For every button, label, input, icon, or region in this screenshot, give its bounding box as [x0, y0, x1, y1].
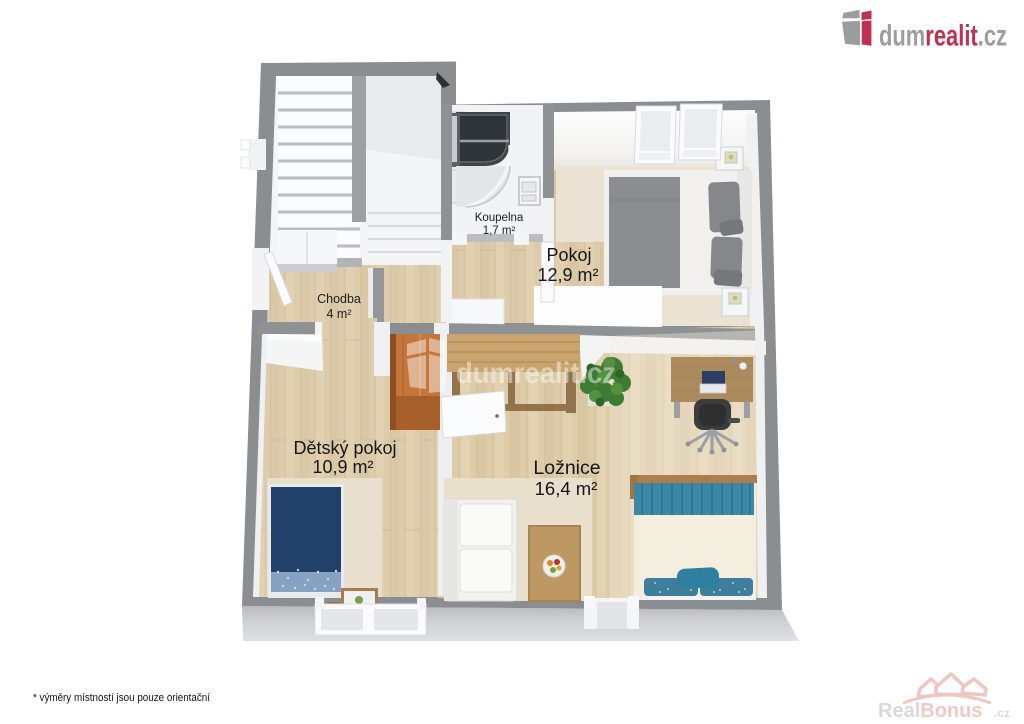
- svg-text:Koupelna: Koupelna: [475, 212, 524, 224]
- svg-text:Ložnice: Ložnice: [533, 457, 600, 479]
- svg-text:4 m²: 4 m²: [327, 307, 352, 321]
- svg-text:1,7 m²: 1,7 m²: [483, 225, 516, 237]
- svg-text:Chodba: Chodba: [317, 292, 361, 306]
- svg-text:Dětský pokoj: Dětský pokoj: [293, 438, 396, 458]
- svg-text:10,9 m²: 10,9 m²: [312, 457, 373, 477]
- svg-text:.cz: .cz: [994, 706, 1010, 720]
- svg-text:16,4 m²: 16,4 m²: [535, 478, 598, 499]
- svg-text:Pokoj: Pokoj: [546, 245, 591, 265]
- svg-text:dumrealit.cz: dumrealit.cz: [456, 357, 616, 390]
- svg-text:* výměry místností jsou pouze: * výměry místností jsou pouze orientační: [33, 692, 210, 704]
- svg-text:RealBonus: RealBonus: [878, 700, 982, 722]
- svg-text:dumrealit.cz: dumrealit.cz: [879, 20, 1007, 53]
- svg-text:12,9 m²: 12,9 m²: [537, 265, 598, 285]
